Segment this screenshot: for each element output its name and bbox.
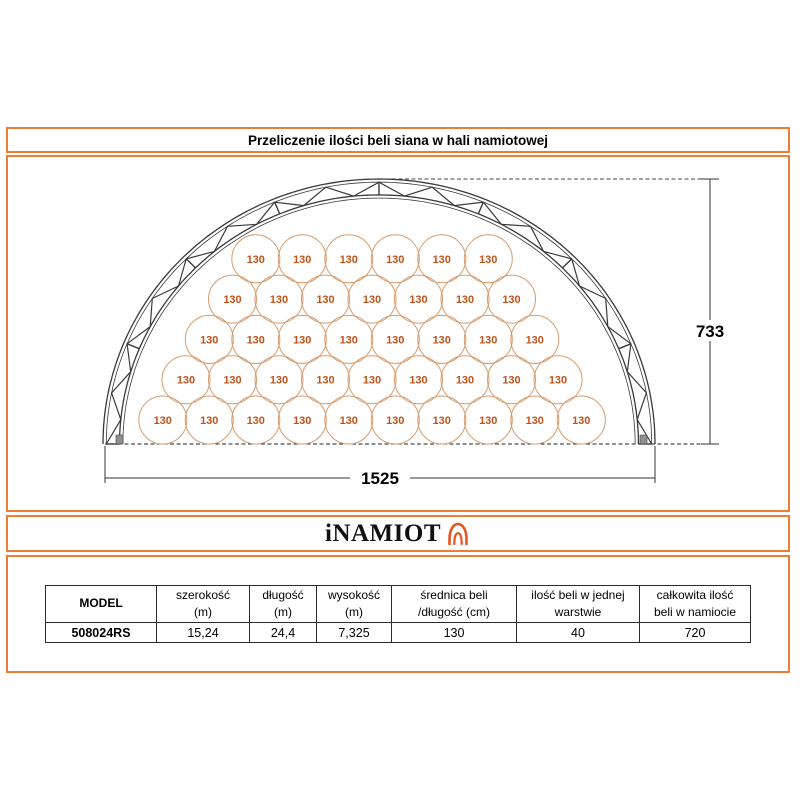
svg-text:1525: 1525 [361, 469, 399, 488]
spec-header-cell: ilość beli w jednejwarstwie [517, 586, 640, 623]
svg-text:130: 130 [526, 415, 544, 427]
spec-header-cell: wysokość(m) [317, 586, 392, 623]
svg-text:130: 130 [433, 254, 451, 266]
svg-text:130: 130 [316, 375, 334, 387]
spec-header-cell: całkowita ilośćbeli w namiocie [640, 586, 751, 623]
svg-text:130: 130 [502, 294, 520, 306]
title-bar: Przeliczenie ilości beli siana w hali na… [6, 127, 790, 153]
svg-text:130: 130 [247, 415, 265, 427]
svg-text:130: 130 [479, 254, 497, 266]
svg-text:130: 130 [363, 294, 381, 306]
spec-table-body: 508024RS15,2424,47,32513040720 [46, 623, 751, 643]
svg-text:130: 130 [456, 375, 474, 387]
svg-text:130: 130 [502, 375, 520, 387]
svg-text:130: 130 [247, 334, 265, 346]
svg-text:130: 130 [200, 334, 218, 346]
spec-table-header: MODELszerokość(m)długość(m)wysokość(m)śr… [46, 586, 751, 623]
svg-text:130: 130 [386, 334, 404, 346]
svg-text:130: 130 [293, 334, 311, 346]
spec-data-row: 508024RS15,2424,47,32513040720 [46, 623, 751, 643]
svg-text:130: 130 [526, 334, 544, 346]
svg-text:130: 130 [177, 375, 195, 387]
svg-text:130: 130 [409, 294, 427, 306]
svg-text:130: 130 [270, 294, 288, 306]
spec-data-cell: 508024RS [46, 623, 157, 643]
svg-text:733: 733 [696, 322, 724, 341]
svg-text:130: 130 [293, 254, 311, 266]
spec-header-cell: średnica beli/długość (cm) [392, 586, 517, 623]
svg-text:130: 130 [456, 294, 474, 306]
tent-diagram-svg: 1301301301301301301301301301301301301301… [8, 157, 788, 510]
svg-text:130: 130 [247, 254, 265, 266]
svg-text:130: 130 [200, 415, 218, 427]
spec-header-row: MODELszerokość(m)długość(m)wysokość(m)śr… [46, 586, 751, 623]
svg-text:130: 130 [572, 415, 590, 427]
svg-text:130: 130 [270, 375, 288, 387]
spec-data-cell: 7,325 [317, 623, 392, 643]
svg-text:130: 130 [316, 294, 334, 306]
spec-data-cell: 40 [517, 623, 640, 643]
spec-data-cell: 15,24 [157, 623, 250, 643]
svg-text:130: 130 [340, 415, 358, 427]
svg-text:130: 130 [386, 254, 404, 266]
tent-icon [445, 520, 471, 547]
svg-text:130: 130 [409, 375, 427, 387]
svg-text:130: 130 [479, 415, 497, 427]
svg-text:130: 130 [433, 334, 451, 346]
spec-table-panel: MODELszerokość(m)długość(m)wysokość(m)śr… [6, 555, 790, 673]
spec-table: MODELszerokość(m)długość(m)wysokość(m)śr… [45, 585, 751, 643]
svg-text:130: 130 [223, 375, 241, 387]
svg-text:130: 130 [223, 294, 241, 306]
page-title: Przeliczenie ilości beli siana w hali na… [8, 129, 788, 152]
svg-text:130: 130 [549, 375, 567, 387]
svg-text:130: 130 [340, 334, 358, 346]
brand-logo-text: iNAMIOT [325, 520, 441, 548]
spec-data-cell: 130 [392, 623, 517, 643]
svg-text:130: 130 [386, 415, 404, 427]
logo-bar: iNAMIOT [6, 515, 790, 552]
svg-text:130: 130 [293, 415, 311, 427]
svg-text:130: 130 [154, 415, 172, 427]
svg-text:130: 130 [340, 254, 358, 266]
spec-header-cell: MODEL [46, 586, 157, 623]
spec-data-cell: 720 [640, 623, 751, 643]
diagram-panel: 1301301301301301301301301301301301301301… [6, 155, 790, 512]
svg-text:130: 130 [363, 375, 381, 387]
svg-text:130: 130 [479, 334, 497, 346]
spec-sheet: Przeliczenie ilości beli siana w hali na… [0, 0, 800, 800]
spec-data-cell: 24,4 [250, 623, 317, 643]
spec-header-cell: szerokość(m) [157, 586, 250, 623]
svg-text:130: 130 [433, 415, 451, 427]
spec-header-cell: długość(m) [250, 586, 317, 623]
